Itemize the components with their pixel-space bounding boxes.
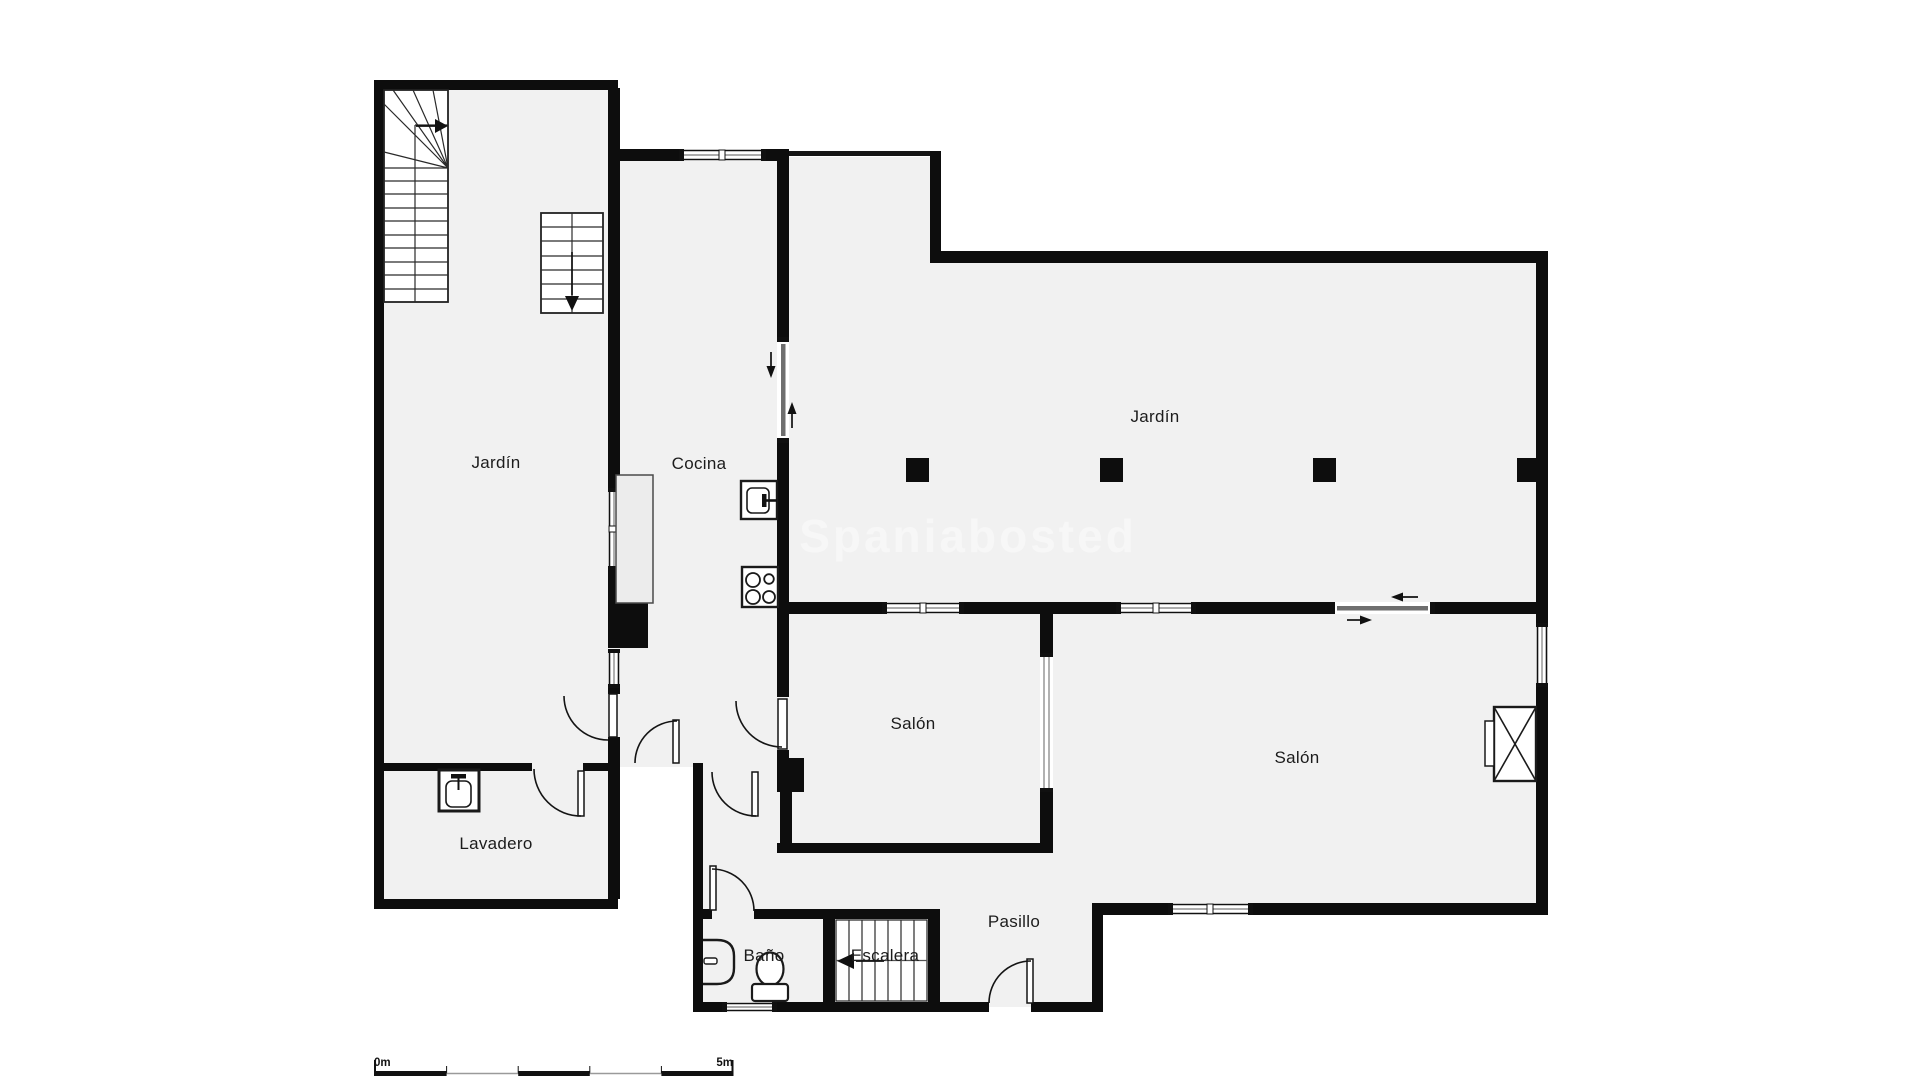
window-icon [722,1002,777,1012]
pillar-icon [1313,458,1336,482]
wall-corner-block [777,758,804,792]
glazed-panel-icon [1040,653,1053,792]
pillar-icon [1100,458,1123,482]
pillar-icon [1517,458,1540,482]
scale-start-label: 0m [374,1057,391,1069]
pillar-icon [906,458,929,482]
room-label-pasillo: Pasillo [988,912,1040,931]
room-label-salon-small: Salón [891,714,936,733]
room-label-bano: Baño [744,946,785,965]
room-label-jardin-left: Jardín [471,453,520,472]
window-icon [1116,602,1196,614]
window-icon [1168,903,1253,915]
laundry-sink-icon [439,770,479,811]
winder-staircase [384,90,448,302]
kitchen-sink-icon [741,481,777,519]
scale-end-label: 5m [716,1057,733,1069]
window-icon [608,649,620,688]
window-icon [1536,623,1548,687]
thin-boundary [780,151,935,156]
watermark: Spaniabosted [799,510,1137,562]
window-icon [882,602,964,614]
room-label-escalera: Escalera [851,946,920,965]
kitchen-counter [616,475,653,603]
room-label-cocina: Cocina [672,454,727,473]
window-icon [679,149,766,161]
stove-icon [742,567,778,607]
scale-bar: 0m 5m [374,1057,733,1076]
room-label-salon-main: Salón [1275,748,1320,767]
straight-staircase-down [541,213,603,313]
room-label-jardin-main: Jardín [1130,407,1179,426]
wall-pillar [608,603,648,648]
floor-plan: Spaniabosted [0,0,1920,1080]
room-label-lavadero: Lavadero [459,834,532,853]
